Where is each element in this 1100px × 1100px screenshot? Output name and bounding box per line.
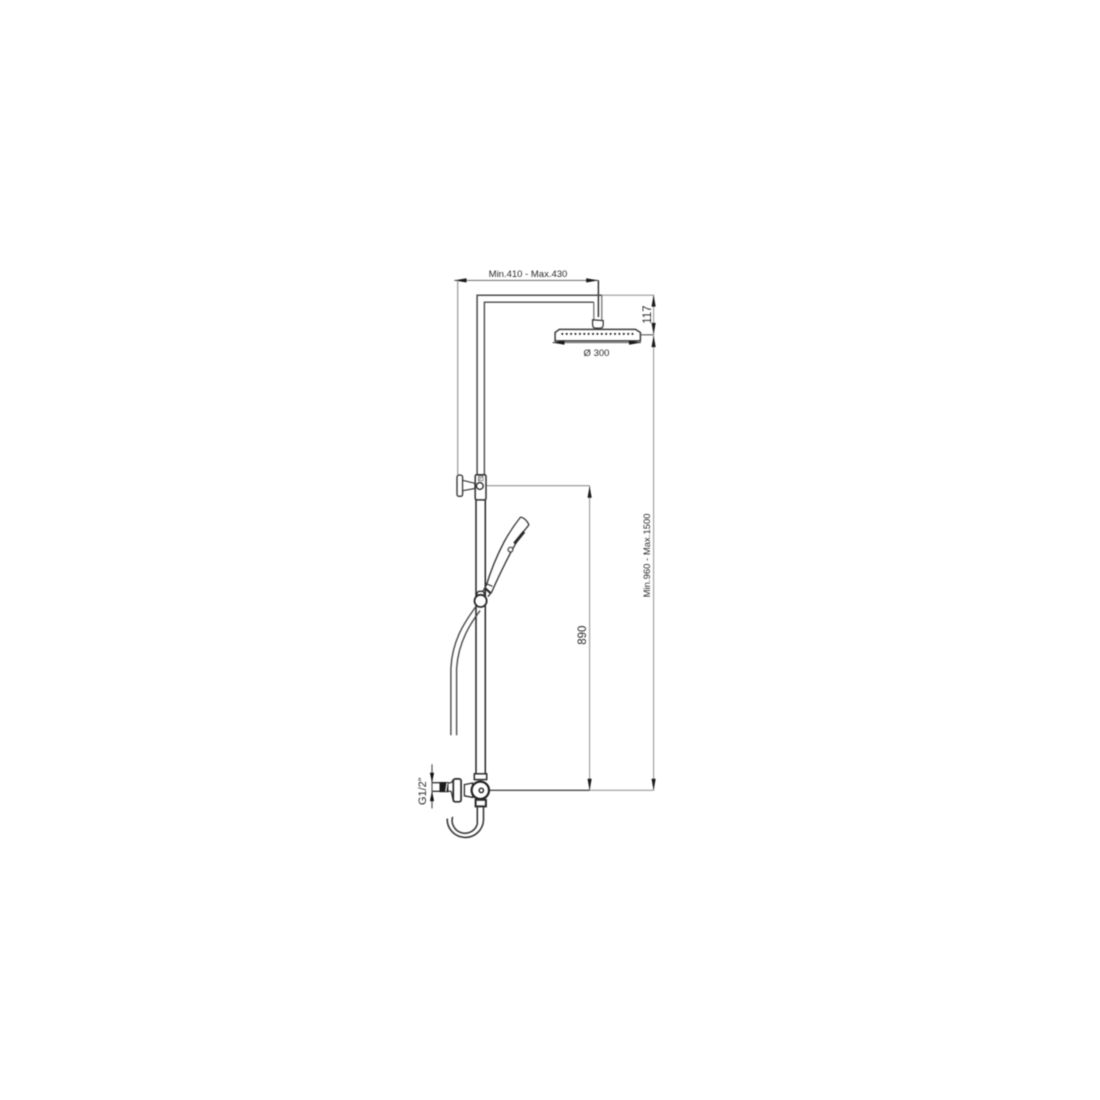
svg-text:Ø 300: Ø 300 <box>584 348 610 359</box>
svg-text:117: 117 <box>642 305 654 323</box>
svg-text:Min.960 - Max.1500: Min.960 - Max.1500 <box>642 513 653 597</box>
svg-text:Min.410 - Max.430: Min.410 - Max.430 <box>489 269 568 280</box>
svg-text:890: 890 <box>577 626 589 645</box>
svg-text:G1/2”: G1/2” <box>417 777 429 805</box>
